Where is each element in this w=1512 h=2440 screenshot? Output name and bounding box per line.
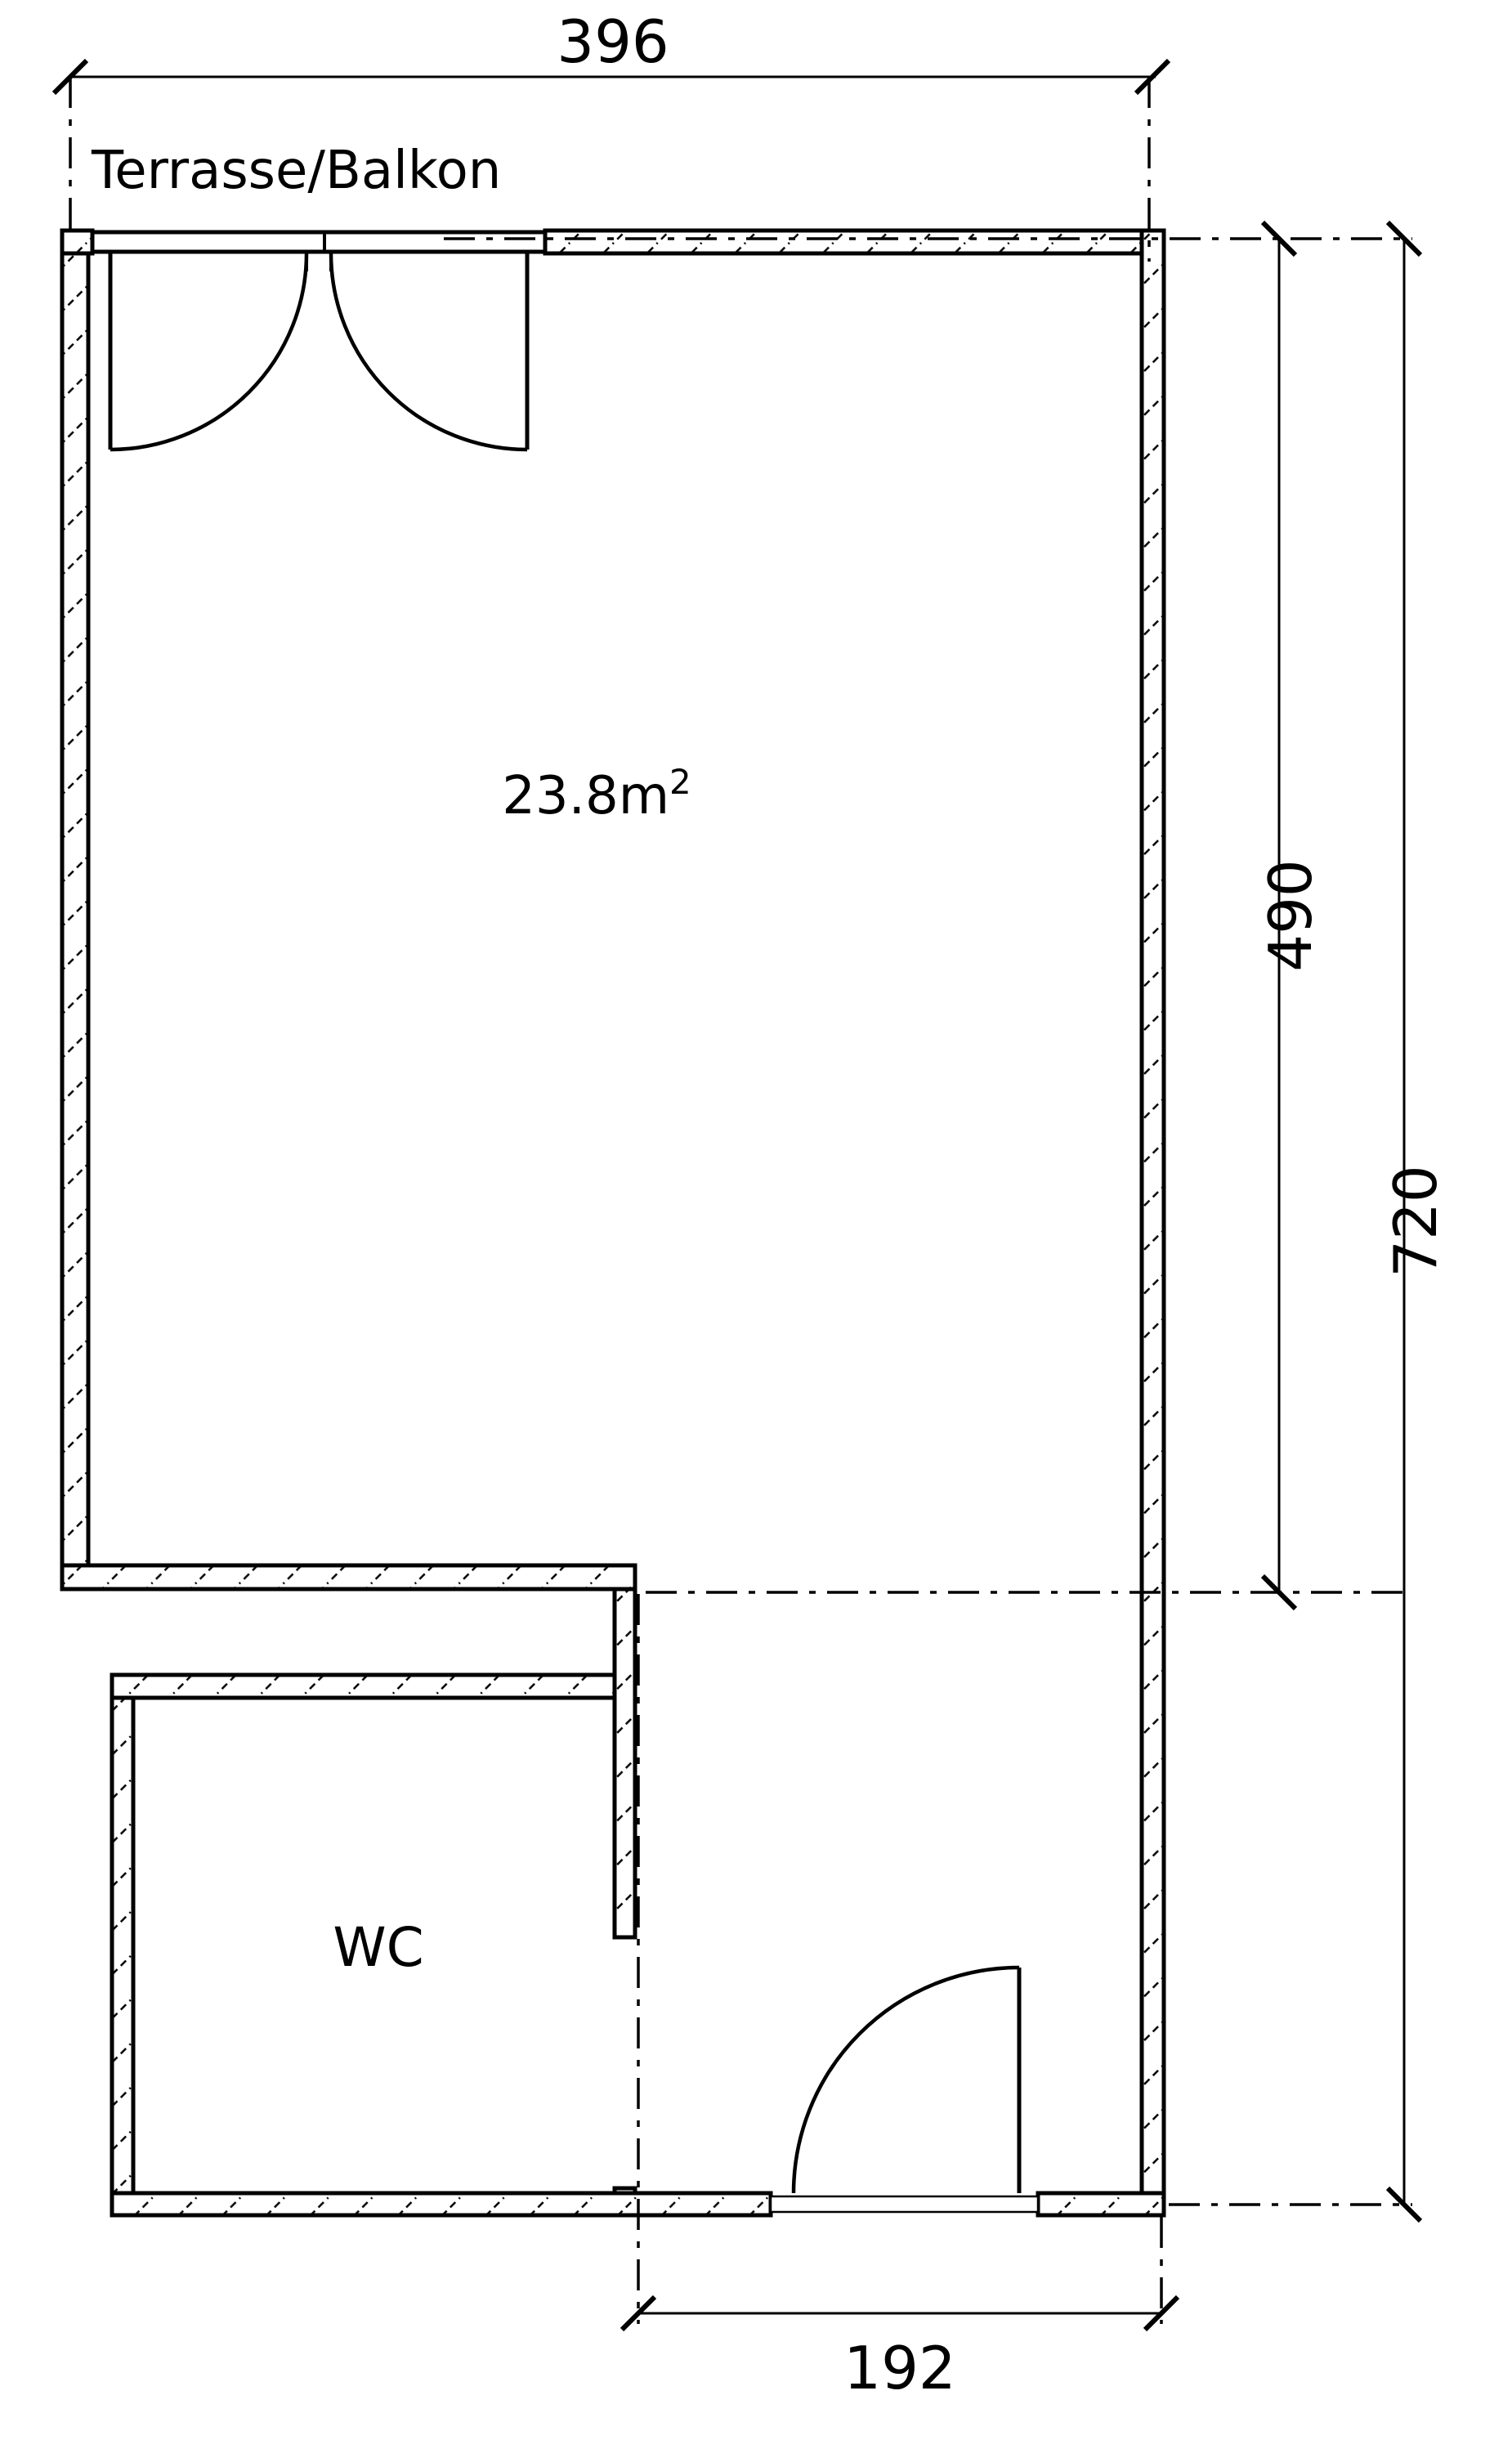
wc-right-wall-upper (615, 1589, 635, 1937)
dim-value-490: 490 (1256, 859, 1325, 971)
area-label: 23.8m2 (502, 762, 691, 826)
top-wall-right (545, 231, 1164, 253)
wc-top-wall (112, 1675, 635, 1698)
area-value: 23.8m (502, 766, 669, 826)
axis-lines (70, 77, 1412, 2324)
french-door-left-leaf (110, 253, 306, 450)
dimension-lines (70, 77, 1404, 2313)
bottom-wall-right (1038, 2193, 1164, 2215)
terrace-label: Terrasse/Balkon (91, 141, 501, 201)
left-wall (62, 231, 88, 1589)
wc-label: WC (333, 1916, 423, 1979)
floor-plan-page: Terrasse/Balkon 23.8m2 WC 396 490 720 19… (0, 0, 1512, 2440)
dim-value-top: 396 (557, 7, 669, 76)
walls (62, 231, 1164, 2215)
right-wall (1142, 231, 1164, 2215)
window-band (92, 232, 545, 252)
bottom-wall-left (112, 2193, 771, 2215)
area-exponent: 2 (669, 762, 691, 802)
floor-plan-drawing: Terrasse/Balkon 23.8m2 WC 396 490 720 19… (0, 0, 1512, 2440)
dim-value-720: 720 (1381, 1165, 1450, 1277)
step-wall (62, 1565, 635, 1589)
door-sill (771, 2196, 1038, 2212)
french-door-right-leaf (331, 253, 527, 450)
entrance-door (771, 1968, 1038, 2212)
dimension-ticks (54, 60, 1420, 2330)
top-wall-corner (62, 231, 92, 253)
door-swing-arc (794, 1968, 1019, 2193)
dim-value-bottom: 192 (843, 2334, 955, 2402)
french-door-window (92, 232, 545, 450)
wc-left-wall (112, 1675, 133, 2215)
